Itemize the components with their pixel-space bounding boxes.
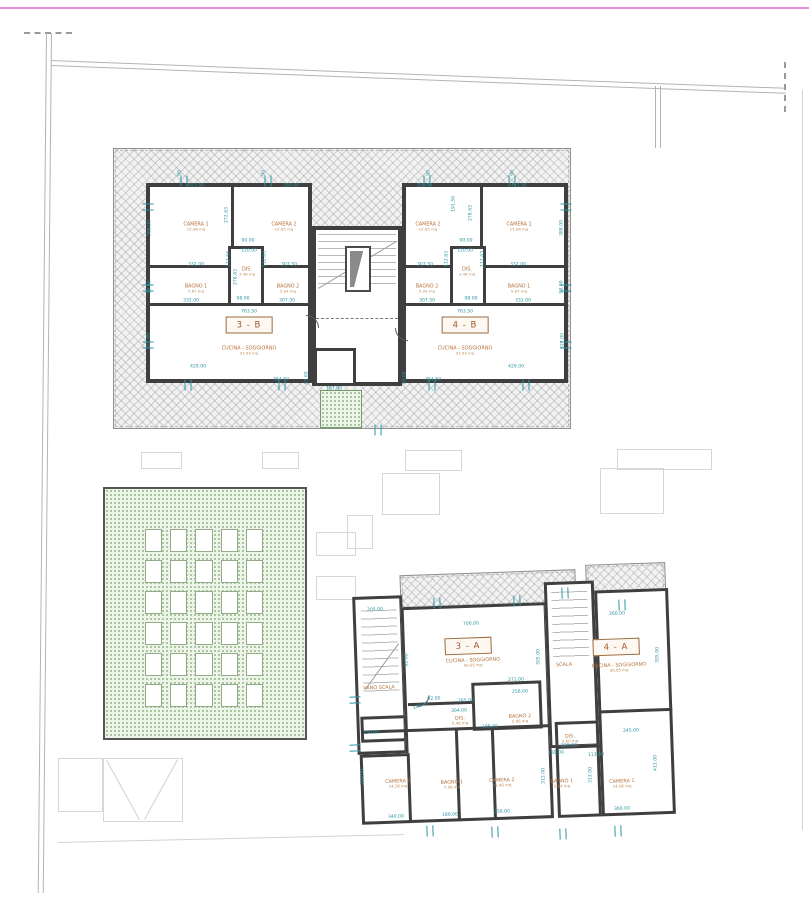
dimension-label: 763.50: [457, 311, 473, 316]
dimension-label: 350.00: [416, 185, 432, 190]
dimension-label: 340.00: [388, 815, 404, 820]
dimension-label: 90: [179, 170, 184, 176]
dimension-label: 271.00: [508, 678, 524, 683]
dimension-label: 65.00: [404, 371, 409, 384]
dimension-label: 421.50: [511, 185, 527, 190]
dimension-label: 318.00: [362, 769, 367, 785]
dimension-label: 191.50: [453, 196, 458, 212]
dimension-label: 90: [263, 170, 268, 176]
dimension-label: 112.63: [482, 251, 487, 267]
dimension-label: 98.00: [149, 280, 154, 293]
dimension-label: 413.00: [655, 755, 660, 771]
dimension-label: 90: [428, 170, 433, 176]
dimension-label: 260.00: [609, 612, 625, 617]
dimension-label: 98.00: [561, 280, 566, 293]
dimension-label: 120.00: [241, 250, 257, 255]
dimension-label: 92.00: [406, 653, 411, 666]
dimension-label: 92.00: [427, 697, 440, 702]
dimension-label: 98.00: [236, 298, 249, 303]
dimension-label: 272.63: [226, 207, 231, 223]
dimension-label: 327.00: [148, 333, 153, 349]
dimension-label: 332.00: [510, 264, 526, 269]
dimension-label: 113.00: [588, 753, 604, 758]
dimension-label: 98.00: [464, 298, 477, 303]
dimension-label: 150.00: [363, 731, 379, 736]
dimension-label: 265.00: [458, 699, 474, 704]
dimension-label: 90: [512, 170, 517, 176]
dimension-label: 763.50: [241, 311, 257, 316]
dimension-label: 360.00: [614, 807, 630, 812]
dimension-label: 256.00: [494, 810, 510, 815]
dimension-label: 429.00: [508, 366, 524, 371]
dimension-label: 388.00: [149, 220, 154, 236]
dimension-label: 186.00: [482, 725, 498, 730]
dimension-label: 278.63: [235, 269, 240, 285]
dimension-label: 307.50: [281, 264, 297, 269]
dimension-label: 180.00: [442, 813, 458, 818]
dimension-label: 305.00: [657, 647, 662, 663]
dimension-label: 112.63: [228, 251, 233, 267]
dimension-label: 332.00: [188, 264, 204, 269]
dimension-label: 354.50: [273, 379, 289, 384]
dimension-label: 112.63: [446, 251, 451, 267]
dimension-label: 278.63: [470, 205, 475, 221]
dimension-label: 354.50: [425, 379, 441, 384]
dimension-label: 421.50: [188, 185, 204, 190]
dimension-label: 205.00: [367, 608, 383, 613]
dimension-label: 429.00: [190, 366, 206, 371]
dimension-label: 90.00: [241, 240, 254, 245]
dimension-label: 305.00: [538, 649, 543, 665]
dimension-label: 220.00: [561, 744, 577, 749]
dimension-label: 180.00: [548, 751, 564, 756]
dimension-label: 350.00: [283, 185, 299, 190]
dimension-label: 332.00: [515, 300, 531, 305]
dimension-label: 313.00: [543, 768, 548, 784]
dimension-label: 307.50: [279, 300, 295, 305]
dimension-layer: 421.50350.00350.00421.50388.00272.63278.…: [0, 0, 809, 897]
dimension-label: 108.00: [413, 702, 430, 712]
dimension-label: 388.00: [561, 220, 566, 236]
dimension-label: 313.00: [590, 767, 595, 783]
dimension-label: 65.00: [306, 371, 311, 384]
floor-plan-canvas: CAMERA 1 15.08 mq CAMERA 2 12.85 mq BAGN…: [0, 0, 809, 897]
dimension-label: 187.00: [326, 388, 342, 393]
dimension-label: 304.00: [451, 709, 467, 714]
dimension-label: 256.00: [512, 690, 528, 695]
dimension-label: 307.50: [417, 264, 433, 269]
dimension-label: 90.00: [459, 240, 472, 245]
dimension-label: 307.50: [419, 300, 435, 305]
dimension-label: 700.00: [463, 622, 479, 627]
dimension-label: 120.00: [457, 250, 473, 255]
dimension-label: 245.00: [623, 729, 639, 734]
dimension-label: 327.00: [562, 333, 567, 349]
dimension-label: 332.00: [183, 300, 199, 305]
dimension-label: 112.63: [264, 251, 269, 267]
